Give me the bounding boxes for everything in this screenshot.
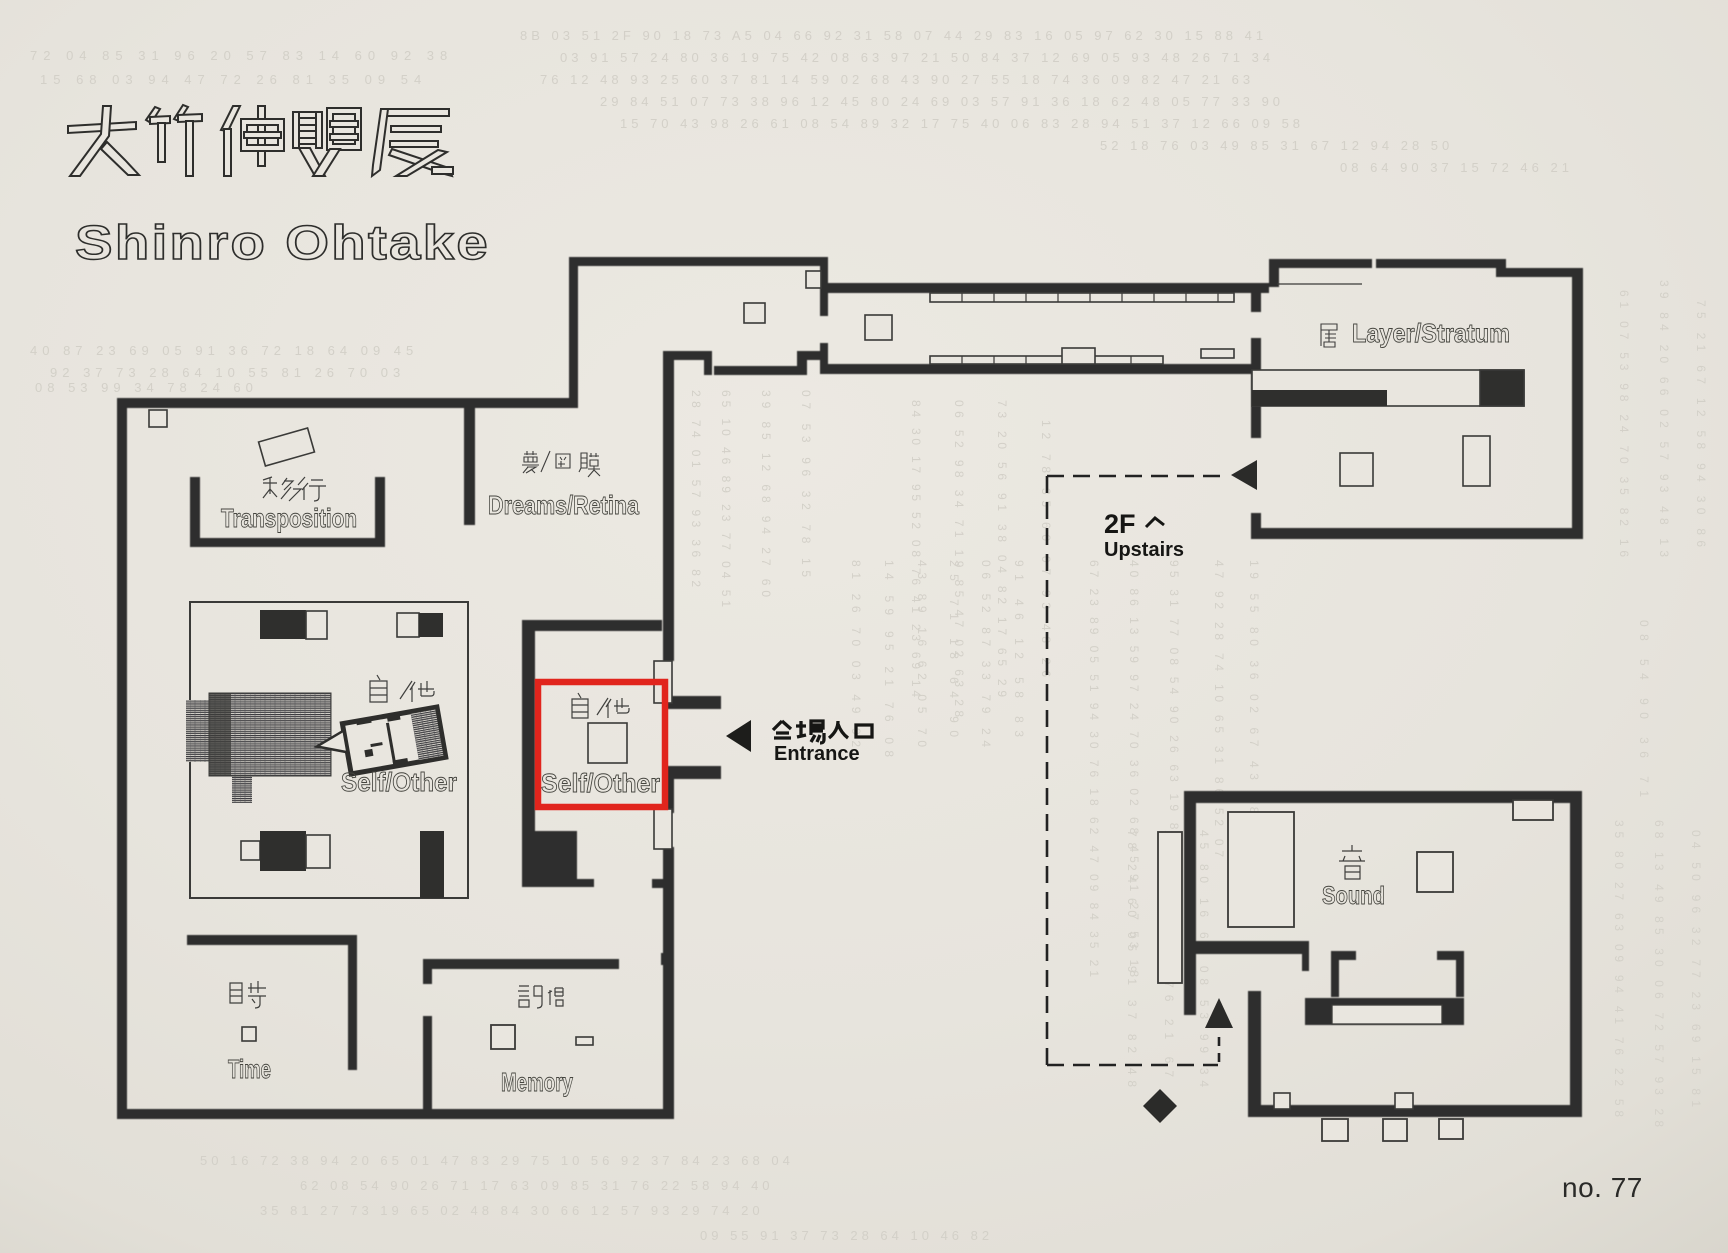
svg-text:8B 03 51 2F 90 18 73 A5 04 66: 8B 03 51 2F 90 18 73 A5 04 66 92 31 58 0… <box>520 28 1267 43</box>
svg-text:67 23 89 05 51 94 30 76 18 62: 67 23 89 05 51 94 30 76 18 62 47 09 84 3… <box>1087 560 1101 980</box>
svg-text:03 91 57 24 80 36 19 75 42 08: 03 91 57 24 80 36 19 75 42 08 63 97 21 5… <box>560 50 1274 65</box>
svg-text:35 80 27 63 09 94 41 76 22 58: 35 80 27 63 09 94 41 76 22 58 <box>1612 820 1626 1120</box>
svg-text:2F: 2F <box>1104 509 1136 539</box>
svg-text:Memory: Memory <box>501 1067 573 1097</box>
svg-text:92 37 73 28 64 10 55 81 26 70: 92 37 73 28 64 10 55 81 26 70 03 <box>50 365 405 380</box>
svg-text:Layer/Stratum: Layer/Stratum <box>1352 318 1510 348</box>
svg-text:06 52 87 33 79 24: 06 52 87 33 79 24 <box>979 560 993 750</box>
svg-text:72 04 85 31 96 20 57 83 14 60: 72 04 85 31 96 20 57 83 14 60 92 38 <box>30 48 453 63</box>
svg-text:39 85 12 68 94 27 60: 39 85 12 68 94 27 60 <box>759 390 773 600</box>
svg-text:40 87 23 69 05 91 36 72 18 64: 40 87 23 69 05 91 36 72 18 64 09 45 <box>30 343 418 358</box>
svg-text:Upstairs: Upstairs <box>1104 539 1184 561</box>
svg-text:45 80 16 62 08 53 99 34: 45 80 16 62 08 53 99 34 <box>1197 830 1211 1090</box>
svg-text:Transposition: Transposition <box>221 503 357 533</box>
svg-text:73 20 56 91 38 04 82 17 65 29: 73 20 56 91 38 04 82 17 65 29 <box>995 400 1009 700</box>
svg-text:Self/Other: Self/Other <box>541 768 660 798</box>
svg-text:52 18 76 03 49 85 31 67 12 94: 52 18 76 03 49 85 31 67 12 94 28 50 <box>1100 138 1453 153</box>
svg-text:08 64 90 37 15 72 46 21: 08 64 90 37 15 72 46 21 <box>1340 160 1573 175</box>
svg-text:78 24 60 05 91 37 82 48: 78 24 60 05 91 37 82 48 <box>1125 830 1139 1090</box>
svg-text:65 10 46 89 23 77 04 51: 65 10 46 89 23 77 04 51 <box>719 390 733 610</box>
svg-text:62 08 54 90 26 71 17 63 09 85: 62 08 54 90 26 71 17 63 09 85 31 76 22 5… <box>300 1178 774 1193</box>
svg-text:08 53 99 34 78 24 60: 08 53 99 34 78 24 60 <box>35 380 258 395</box>
svg-text:81 26 70 03 49 92: 81 26 70 03 49 92 <box>849 560 863 750</box>
svg-text:61 07 53 98 24 70 35 82 16: 61 07 53 98 24 70 35 82 16 <box>1617 290 1631 560</box>
svg-text:Dreams/Retina: Dreams/Retina <box>488 490 639 520</box>
svg-text:50 16 72 38 94 20 65 01 47 83: 50 16 72 38 94 20 65 01 47 83 29 75 10 5… <box>200 1153 794 1168</box>
svg-text:Self/Other: Self/Other <box>341 767 457 797</box>
svg-text:07 53 96 32 78 15: 07 53 96 32 78 15 <box>799 390 813 580</box>
svg-text:14 59 95 21 76 08: 14 59 95 21 76 08 <box>882 560 896 760</box>
svg-text:Time: Time <box>228 1054 271 1084</box>
svg-text:76 12 48 93 25 60 37 81 14 59: 76 12 48 93 25 60 37 81 14 59 02 68 43 9… <box>540 72 1254 87</box>
svg-text:Entrance: Entrance <box>774 743 860 765</box>
svg-text:28 74 01 57 93 36 82: 28 74 01 57 93 36 82 <box>689 390 703 590</box>
svg-text:29 84 51 07 73 38 96 12 45 80: 29 84 51 07 73 38 96 12 45 80 24 69 03 5… <box>600 94 1284 109</box>
svg-text:no. 77: no. 77 <box>1562 1172 1643 1203</box>
svg-text:Shinro Ohtake: Shinro Ohtake <box>75 217 490 270</box>
svg-text:09 55 91 37 73 28 64 10 46 82: 09 55 91 37 73 28 64 10 46 82 <box>700 1228 993 1243</box>
svg-text:15 68 03 94 47 72 26 81 35 09: 15 68 03 94 47 72 26 81 35 09 54 <box>40 72 427 87</box>
svg-text:Sound: Sound <box>1322 882 1385 910</box>
svg-text:47 92 28 74 10 65 31 86 52 07: 47 92 28 74 10 65 31 86 52 07 <box>1212 560 1226 860</box>
svg-text:75 21 67 12 58 94 30 86: 75 21 67 12 58 94 30 86 <box>1694 300 1708 550</box>
svg-text:68 13 49 85 30 06 72 57 93 28: 68 13 49 85 30 06 72 57 93 28 <box>1652 820 1666 1130</box>
svg-text:35 81 27 73 19 65 02 48 84 30: 35 81 27 73 19 65 02 48 84 30 66 12 57 9… <box>260 1203 764 1218</box>
svg-text:43 89 16 62 05 70: 43 89 16 62 05 70 <box>915 560 929 750</box>
svg-text:15 70 43 98 26 61 08 54 89 32: 15 70 43 98 26 61 08 54 89 32 17 75 40 0… <box>620 116 1304 131</box>
